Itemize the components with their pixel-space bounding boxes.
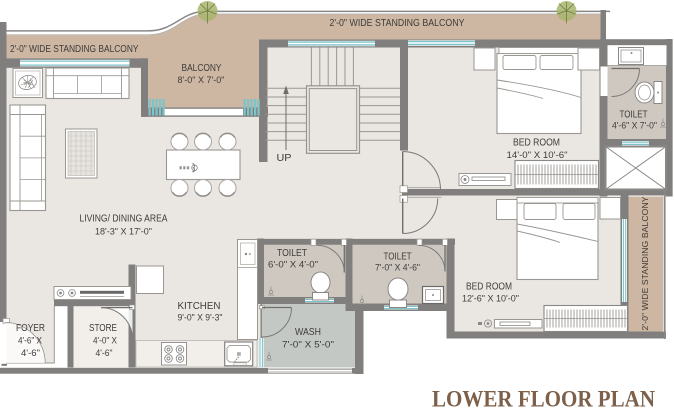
svg-text:KITCHEN: KITCHEN (178, 301, 221, 312)
svg-text:LIVING/ DINING AREA: LIVING/ DINING AREA (80, 214, 168, 225)
svg-text:BED ROOM: BED ROOM (466, 282, 512, 293)
svg-text:2'-0" WIDE STANDING BALCONY: 2'-0" WIDE STANDING BALCONY (640, 196, 650, 330)
svg-text:8'-0" X 7'-0": 8'-0" X 7'-0" (178, 74, 225, 85)
svg-text:14'-0" X 10'-6": 14'-0" X 10'-6" (507, 149, 568, 160)
svg-text:7'-0" X 5'-0": 7'-0" X 5'-0" (282, 339, 334, 350)
svg-text:2'-0" WIDE STANDING BALCONY: 2'-0" WIDE STANDING BALCONY (10, 44, 139, 55)
svg-text:6'-0" X 4'-0": 6'-0" X 4'-0" (268, 259, 318, 270)
svg-text:4'-6" X 7'-0": 4'-6" X 7'-0" (612, 120, 657, 131)
svg-text:TOILET: TOILET (277, 248, 307, 259)
svg-text:4'-6" X: 4'-6" X (18, 335, 43, 346)
svg-text:FOYER: FOYER (16, 323, 45, 334)
svg-text:UP: UP (277, 153, 292, 164)
svg-text:BALCONY: BALCONY (182, 63, 222, 74)
svg-text:4'-0" X: 4'-0" X (93, 335, 118, 346)
svg-text:4'-6": 4'-6" (21, 347, 40, 358)
svg-text:BED ROOM: BED ROOM (513, 138, 560, 149)
svg-text:WASH: WASH (295, 327, 321, 338)
svg-text:7'-0" X 4'-6": 7'-0" X 4'-6" (375, 262, 420, 273)
svg-text:18'-3" X 17'-0": 18'-3" X 17'-0" (95, 226, 152, 237)
svg-text:LOWER FLOOR PLAN: LOWER FLOOR PLAN (432, 387, 655, 411)
svg-text:2'-0" WIDE STANDING BALCONY: 2'-0" WIDE STANDING BALCONY (330, 18, 465, 29)
svg-text:STORE: STORE (89, 323, 117, 334)
svg-text:9'-0" X 9'-3": 9'-0" X 9'-3" (178, 312, 223, 323)
svg-text:4'-6": 4'-6" (96, 347, 113, 358)
svg-text:12'-6" X 10'-0": 12'-6" X 10'-0" (462, 293, 519, 304)
